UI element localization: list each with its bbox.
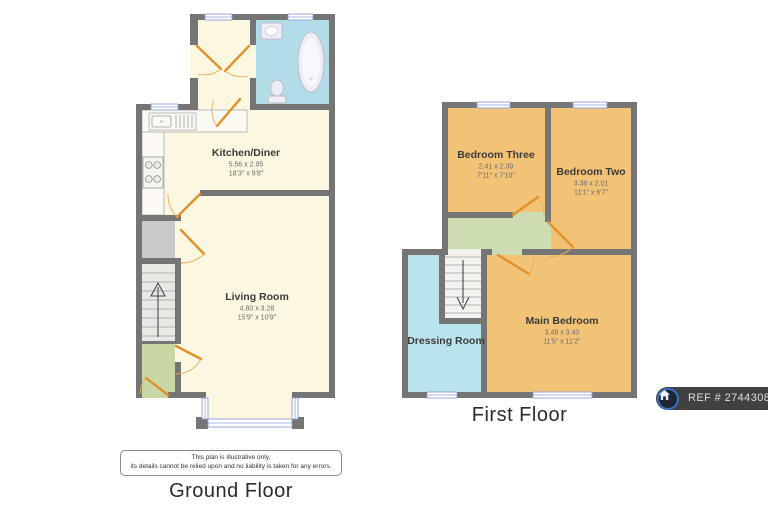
bathtub-drain bbox=[309, 77, 313, 81]
room-label-living-room: Living Room bbox=[225, 291, 289, 303]
landing-floor bbox=[448, 212, 551, 255]
ground-floor-plan: Kitchen/Diner 5.56 x 2.95 18'3" x 9'8" L… bbox=[136, 14, 335, 429]
room-dim-imperial: 11'1" x 6'7" bbox=[574, 190, 608, 197]
porch-floor bbox=[142, 344, 175, 398]
floorplan-image: Kitchen/Diner 5.56 x 2.95 18'3" x 9'8" L… bbox=[0, 0, 768, 512]
room-dim-metric: 4.80 x 3.28 bbox=[240, 306, 275, 313]
room-dim-metric: 3.48 x 3.40 bbox=[545, 330, 580, 337]
disclaimer-line2: its details cannot be relied upon and no… bbox=[122, 463, 340, 472]
first-floor-title: First Floor bbox=[402, 404, 637, 427]
room-label-bedroom-three: Bedroom Three bbox=[457, 149, 535, 161]
toilet-icon bbox=[271, 80, 284, 96]
room-dim-metric: 5.56 x 2.95 bbox=[229, 162, 264, 169]
onthemarket-house-icon bbox=[657, 388, 679, 410]
hob-icon bbox=[143, 157, 163, 188]
basin-bowl bbox=[265, 27, 278, 36]
room-dim-metric: 3.38 x 2.01 bbox=[574, 181, 609, 188]
room-label-dressing-room: Dressing Room bbox=[407, 335, 485, 347]
room-dim-imperial: 7'11" x 7'10" bbox=[477, 173, 515, 180]
disclaimer-line1: This plan is illustrative only, bbox=[122, 454, 340, 463]
hob-burner bbox=[154, 176, 161, 183]
ref-number: REF # 2744308 bbox=[688, 392, 768, 404]
hob-burner bbox=[154, 162, 161, 169]
disclaimer-box: This plan is illustrative only, its deta… bbox=[120, 450, 342, 476]
room-label-kitchen-diner: Kitchen/Diner bbox=[212, 147, 280, 159]
hob-burner bbox=[145, 162, 152, 169]
room-dim-imperial: 11'5" x 11'2" bbox=[543, 339, 581, 346]
room-dim-imperial: 15'9" x 10'9" bbox=[238, 315, 277, 322]
storage-cupboard-floor bbox=[142, 221, 175, 258]
hob-burner bbox=[145, 176, 152, 183]
floorplan-drawing: Kitchen/Diner 5.56 x 2.95 18'3" x 9'8" L… bbox=[0, 0, 768, 512]
room-dim-imperial: 18'3" x 9'8" bbox=[229, 171, 264, 178]
first-floor-plan: Bedroom Three 2.41 x 2.39 7'11" x 7'10" … bbox=[402, 102, 637, 398]
ground-floor-title: Ground Floor bbox=[120, 480, 342, 503]
sink-drain bbox=[160, 120, 163, 123]
room-label-main-bedroom: Main Bedroom bbox=[526, 315, 599, 327]
room-label-bedroom-two: Bedroom Two bbox=[556, 166, 625, 178]
room-dim-metric: 2.41 x 2.39 bbox=[479, 164, 514, 171]
house-glyph bbox=[659, 390, 670, 400]
toilet-cistern bbox=[268, 96, 286, 103]
